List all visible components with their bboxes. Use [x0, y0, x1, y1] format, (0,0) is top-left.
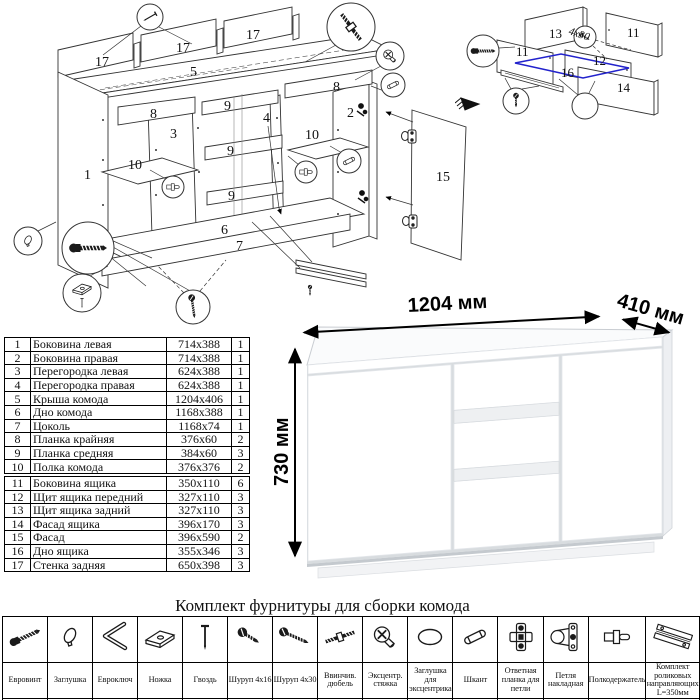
hardware-item-name: Эксцентр. стяжка — [363, 663, 408, 699]
part-name: Щит ящика задний — [31, 504, 167, 518]
part-name: Фасад ящика — [31, 517, 167, 531]
hardware-item-cell — [646, 617, 700, 663]
foot-icon — [138, 617, 182, 657]
part-number: 12 — [5, 490, 31, 504]
callout-circle — [572, 93, 598, 119]
commode-right-door — [562, 348, 662, 541]
part-name: Фасад — [31, 531, 167, 545]
callout-circle — [381, 73, 405, 97]
hardware-item-name: Заглушка для эксцентрика — [408, 663, 453, 699]
part-qty: 3 — [232, 504, 250, 518]
part-qty: 1 — [232, 365, 250, 379]
table-row: 7Цоколь1168x741 — [5, 419, 250, 433]
part-name: Щит ящика передний — [31, 490, 167, 504]
commode-drawer-1 — [454, 356, 559, 410]
cap-icon — [48, 617, 92, 657]
hardware-item-name: Шуруп 4х16 — [228, 663, 273, 699]
part-size: 624x388 — [167, 365, 232, 379]
part-middle-bar — [205, 135, 282, 160]
commode-dimension-drawing: 1204 мм 410 мм 730 мм — [258, 288, 700, 600]
part-number-label: 10 — [305, 128, 319, 143]
hardware-item-cell — [453, 617, 498, 663]
hinge-icon — [403, 215, 418, 228]
hardware-kit-title: Комплект фурнитуры для сборки комода — [0, 596, 645, 616]
hardware-item-cell — [228, 617, 273, 663]
part-size: 384x60 — [167, 446, 232, 460]
table-row: 5Крыша комода1204x4061 — [5, 392, 250, 406]
part-number-label: 8 — [333, 80, 340, 95]
part-size: 714x388 — [167, 351, 232, 365]
commode-drawer-2 — [454, 415, 559, 469]
hardware-item-name: Ножка — [138, 663, 183, 699]
table-row: 1Боковина левая714x3881 — [5, 338, 250, 352]
part-number: 11 — [5, 476, 31, 490]
part-size: 376x376 — [167, 460, 232, 474]
part-number-label: 14 — [617, 80, 631, 95]
hardware-item-cell — [318, 617, 363, 663]
dowel-screw-icon — [318, 617, 362, 657]
table-row: 4Перегородка правая624x3881 — [5, 378, 250, 392]
part-drawer-side-edge — [658, 23, 662, 57]
hardware-item-name: Заглушка — [48, 663, 93, 699]
table-row: 10Полка комода376x3762 — [5, 460, 250, 474]
hinge-icon — [402, 130, 417, 143]
part-number: 5 — [5, 392, 31, 406]
part-qty: 3 — [232, 490, 250, 504]
table-row: ЕвровинтЗаглушкаЕвроключНожкаГвоздьШуруп… — [3, 663, 700, 699]
part-qty: 2 — [232, 433, 250, 447]
part-number-label: 11 — [627, 25, 640, 40]
part-number-label: 9 — [224, 99, 231, 114]
hinge-icon — [544, 617, 588, 657]
part-name: Перегородка правая — [31, 378, 167, 392]
hardware-item-cell — [183, 617, 228, 663]
part-number: 8 — [5, 433, 31, 447]
part-name: Цоколь — [31, 419, 167, 433]
table-row: 13Щит ящика задний327x1103 — [5, 504, 250, 518]
parts-table-section2: 11Боковина ящика350x110612Щит ящика пере… — [4, 476, 250, 572]
table-row: 2Боковина правая714x3881 — [5, 351, 250, 365]
part-qty: 6 — [232, 476, 250, 490]
hardware-item-cell — [48, 617, 93, 663]
table-row: 6Дно комода1168x3881 — [5, 405, 250, 419]
hinge-plate-icon — [499, 617, 543, 657]
table-row: 11Боковина ящика350x1106 — [5, 476, 250, 490]
part-number: 6 — [5, 405, 31, 419]
part-number: 17 — [5, 558, 31, 572]
part-name: Стенка задняя — [31, 558, 167, 572]
part-name: Дно ящика — [31, 544, 167, 558]
exploded-assembly-diagram: 171717588349992101016715 — [0, 0, 480, 335]
part-number-label: 12 — [593, 53, 606, 68]
part-name: Боковина ящика — [31, 476, 167, 490]
part-name: Боковина левая — [31, 338, 167, 352]
part-qty: 3 — [232, 517, 250, 531]
depth-dimension: 410 мм — [615, 290, 687, 330]
part-size: 355x346 — [167, 544, 232, 558]
part-number-label: 17 — [95, 55, 109, 70]
commode-left-door — [308, 365, 451, 561]
table-row: 8Планка крайняя376x602 — [5, 433, 250, 447]
width-dimension: 1204 мм — [407, 291, 488, 317]
dowel-icon — [453, 617, 497, 657]
hardware-item-cell — [408, 617, 453, 663]
part-size: 1168x74 — [167, 419, 232, 433]
part-qty: 3 — [232, 446, 250, 460]
part-drawer-facade-edge — [654, 80, 658, 115]
hardware-item-cell — [93, 617, 138, 663]
cam-icon — [363, 617, 407, 657]
part-size: 1204x406 — [167, 392, 232, 406]
part-name: Крыша комода — [31, 392, 167, 406]
part-number-label: 1 — [84, 168, 91, 183]
part-number: 4 — [5, 378, 31, 392]
hardware-item-cell — [543, 617, 588, 663]
part-number-label: 10 — [128, 158, 142, 173]
part-name: Перегородка левая — [31, 365, 167, 379]
part-number-label: 16 — [561, 65, 575, 80]
hardware-item-cell — [498, 617, 543, 663]
part-number: 9 — [5, 446, 31, 460]
part-size: 327x110 — [167, 504, 232, 518]
part-size: 650x398 — [167, 558, 232, 572]
drawer-assembly-diagram: 4х30 131111121614 — [455, 0, 700, 135]
part-right-side-edge — [369, 81, 377, 239]
part-number-label: 17 — [246, 28, 260, 43]
part-number: 3 — [5, 365, 31, 379]
assembly-instruction-sheet: 171717588349992101016715 — [0, 0, 700, 700]
part-name: Планка крайняя — [31, 433, 167, 447]
hardware-item-cell — [3, 617, 48, 663]
hardware-item-name: Евроключ — [93, 663, 138, 699]
part-number: 14 — [5, 517, 31, 531]
hardware-item-name: Шкант — [453, 663, 498, 699]
cam-cap-icon — [408, 617, 452, 657]
shelf-holder-icon — [595, 617, 639, 657]
commode-drawer-3 — [454, 473, 559, 549]
part-name: Полка комода — [31, 460, 167, 474]
part-number-label: 9 — [227, 144, 234, 159]
frame-post — [293, 14, 299, 40]
parts-list: 1Боковина левая714x38812Боковина правая7… — [4, 337, 236, 574]
hardware-item-name: Ввинчив. дюбель — [318, 663, 363, 699]
height-dimension: 730 мм — [271, 417, 293, 486]
hardware-item-name: Ответная планка для петли — [498, 663, 543, 699]
frame-post — [134, 42, 140, 68]
part-qty: 1 — [232, 378, 250, 392]
hardware-item-cell — [363, 617, 408, 663]
hardware-item-name: Комплект роликовых направляющих L=350мм — [646, 663, 700, 699]
nail-icon — [183, 617, 227, 657]
part-size: 1168x388 — [167, 405, 232, 419]
part-qty: 1 — [232, 351, 250, 365]
part-number-label: 13 — [549, 26, 562, 41]
table-row: 14Фасад ящика396x1703 — [5, 517, 250, 531]
hardware-item-cell — [138, 617, 183, 663]
eurobolt-icon — [3, 617, 47, 657]
hardware-item-name: Полкодержатель — [588, 663, 646, 699]
part-qty: 1 — [232, 338, 250, 352]
screw-short-icon — [228, 617, 272, 657]
part-number: 1 — [5, 338, 31, 352]
part-size: 396x590 — [167, 531, 232, 545]
part-number-label: 2 — [347, 106, 354, 121]
part-number-label: 4 — [263, 111, 270, 126]
hardware-item-cell — [273, 617, 318, 663]
commode-right-face — [663, 330, 672, 536]
part-middle-bar — [207, 181, 283, 205]
part-number: 15 — [5, 531, 31, 545]
part-size: 714x388 — [167, 338, 232, 352]
part-size: 376x60 — [167, 433, 232, 447]
part-number: 7 — [5, 419, 31, 433]
table-row — [3, 617, 700, 663]
part-number: 2 — [5, 351, 31, 365]
hardware-item-name: Петля накладная — [543, 663, 588, 699]
hardware-item-name: Гвоздь — [183, 663, 228, 699]
part-number: 16 — [5, 544, 31, 558]
part-size: 327x110 — [167, 490, 232, 504]
part-number-label: 11 — [516, 44, 529, 59]
part-number-label: 3 — [170, 127, 177, 142]
hardware-table: ЕвровинтЗаглушкаЕвроключНожкаГвоздьШуруп… — [2, 616, 700, 700]
part-number-label: 7 — [236, 239, 243, 254]
part-number: 10 — [5, 460, 31, 474]
table-row: 17Стенка задняя650x3983 — [5, 558, 250, 572]
part-size: 396x170 — [167, 517, 232, 531]
callout-circle — [337, 149, 361, 173]
hexkey-icon — [93, 617, 137, 657]
part-qty: 3 — [232, 558, 250, 572]
part-number: 13 — [5, 504, 31, 518]
part-size: 350x110 — [167, 476, 232, 490]
part-qty: 1 — [232, 392, 250, 406]
callout-circle — [162, 176, 184, 198]
part-name: Дно комода — [31, 405, 167, 419]
hardware-item-cell — [588, 617, 646, 663]
part-number-label: 9 — [228, 189, 235, 204]
hardware-item-name: Шуруп 4х30 — [273, 663, 318, 699]
part-qty: 2 — [232, 531, 250, 545]
part-qty: 3 — [232, 544, 250, 558]
frame-post — [217, 28, 223, 54]
part-name: Боковина правая — [31, 351, 167, 365]
hardware-item-name: Евровинт — [3, 663, 48, 699]
insert-direction-arrow-icon — [455, 98, 479, 110]
part-qty: 1 — [232, 405, 250, 419]
callout-circle — [295, 161, 317, 183]
parts-table-section1: 1Боковина левая714x38812Боковина правая7… — [4, 337, 250, 474]
table-row: 9Планка средняя384x603 — [5, 446, 250, 460]
part-number-label: 5 — [190, 65, 197, 80]
part-qty: 2 — [232, 460, 250, 474]
callout-circle — [14, 227, 42, 255]
table-row: 3Перегородка левая624x3881 — [5, 365, 250, 379]
table-row: 16Дно ящика355x3463 — [5, 544, 250, 558]
table-row: 15Фасад396x5902 — [5, 531, 250, 545]
part-number-label: 6 — [221, 223, 228, 238]
table-row: 12Щит ящика передний327x1103 — [5, 490, 250, 504]
part-number-label: 17 — [176, 41, 190, 56]
part-qty: 1 — [232, 419, 250, 433]
screw-long-icon — [273, 617, 317, 657]
part-name: Планка средняя — [31, 446, 167, 460]
rails-icon — [651, 617, 695, 657]
part-size: 624x388 — [167, 378, 232, 392]
part-number-label: 15 — [436, 170, 450, 185]
part-number-label: 8 — [150, 107, 157, 122]
